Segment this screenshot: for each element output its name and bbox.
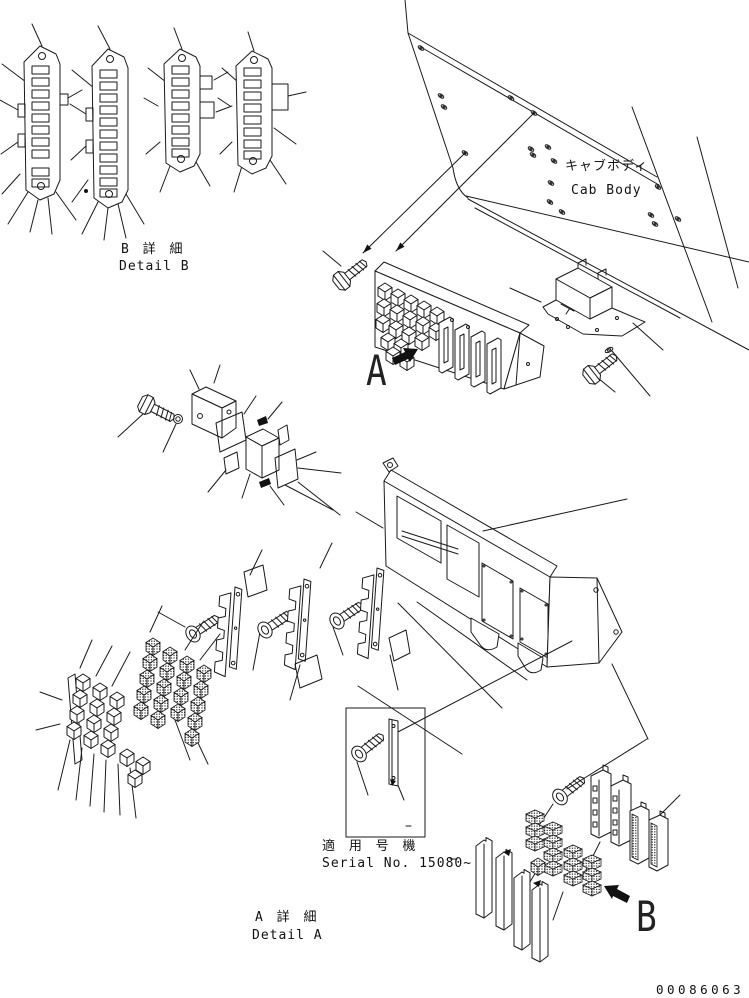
clamp-bolt	[136, 393, 178, 427]
detail-a-label-jp: A 詳 細	[255, 911, 319, 925]
detail-b-connector-strips	[0, 24, 306, 240]
fuse-box-assembly	[323, 251, 544, 394]
connector-block-3	[630, 802, 649, 864]
view-a-letter: A	[366, 348, 387, 394]
fuse-clusters	[36, 606, 220, 818]
detail-a-label-en: Detail A	[252, 929, 323, 943]
view-b-arrow-icon	[604, 885, 630, 903]
drawing-number: 00086063	[656, 983, 744, 997]
connector-block-4	[649, 811, 668, 871]
comb-plate-1	[214, 592, 231, 677]
connector-strip-3	[144, 28, 232, 192]
connector-block-1	[591, 765, 611, 838]
terminal-screws-and-plates	[158, 543, 410, 700]
serial-label-jp: 適 用 号 機	[322, 840, 418, 854]
mount-bracket	[543, 259, 645, 387]
clamp-bracket	[192, 387, 236, 438]
connector-strip-2	[70, 26, 144, 240]
assembly-bolt	[330, 254, 372, 292]
cab-body-label-en: Cab Body	[571, 184, 642, 198]
panel-bolt-holes	[417, 45, 681, 227]
connector-strip-4	[218, 32, 306, 192]
parts-diagram-page: B 詳 細 Detail B キャブボディ Cab Body A B 適 用 号…	[0, 0, 749, 998]
detail-b-label-jp: B 詳 細	[121, 243, 185, 257]
inset-screw	[349, 729, 389, 765]
cab-body-label-jp: キャブボディ	[565, 160, 648, 174]
view-b-letter: B	[636, 894, 657, 940]
inset-bar	[389, 719, 398, 786]
clamp-hardware	[118, 365, 341, 515]
detail-b-label-en: Detail B	[119, 260, 190, 274]
fuse-cluster-hatched	[134, 638, 211, 747]
clamp-block	[246, 429, 279, 478]
connector-strip-1	[0, 24, 82, 234]
channel-covers	[476, 838, 548, 963]
backing-strip-1	[229, 587, 242, 669]
fuse-box-housing	[356, 458, 627, 673]
connector-block-2	[611, 775, 631, 846]
detail-b-screw	[550, 772, 590, 808]
serial-label-en: Serial No. 15080~	[322, 857, 472, 871]
